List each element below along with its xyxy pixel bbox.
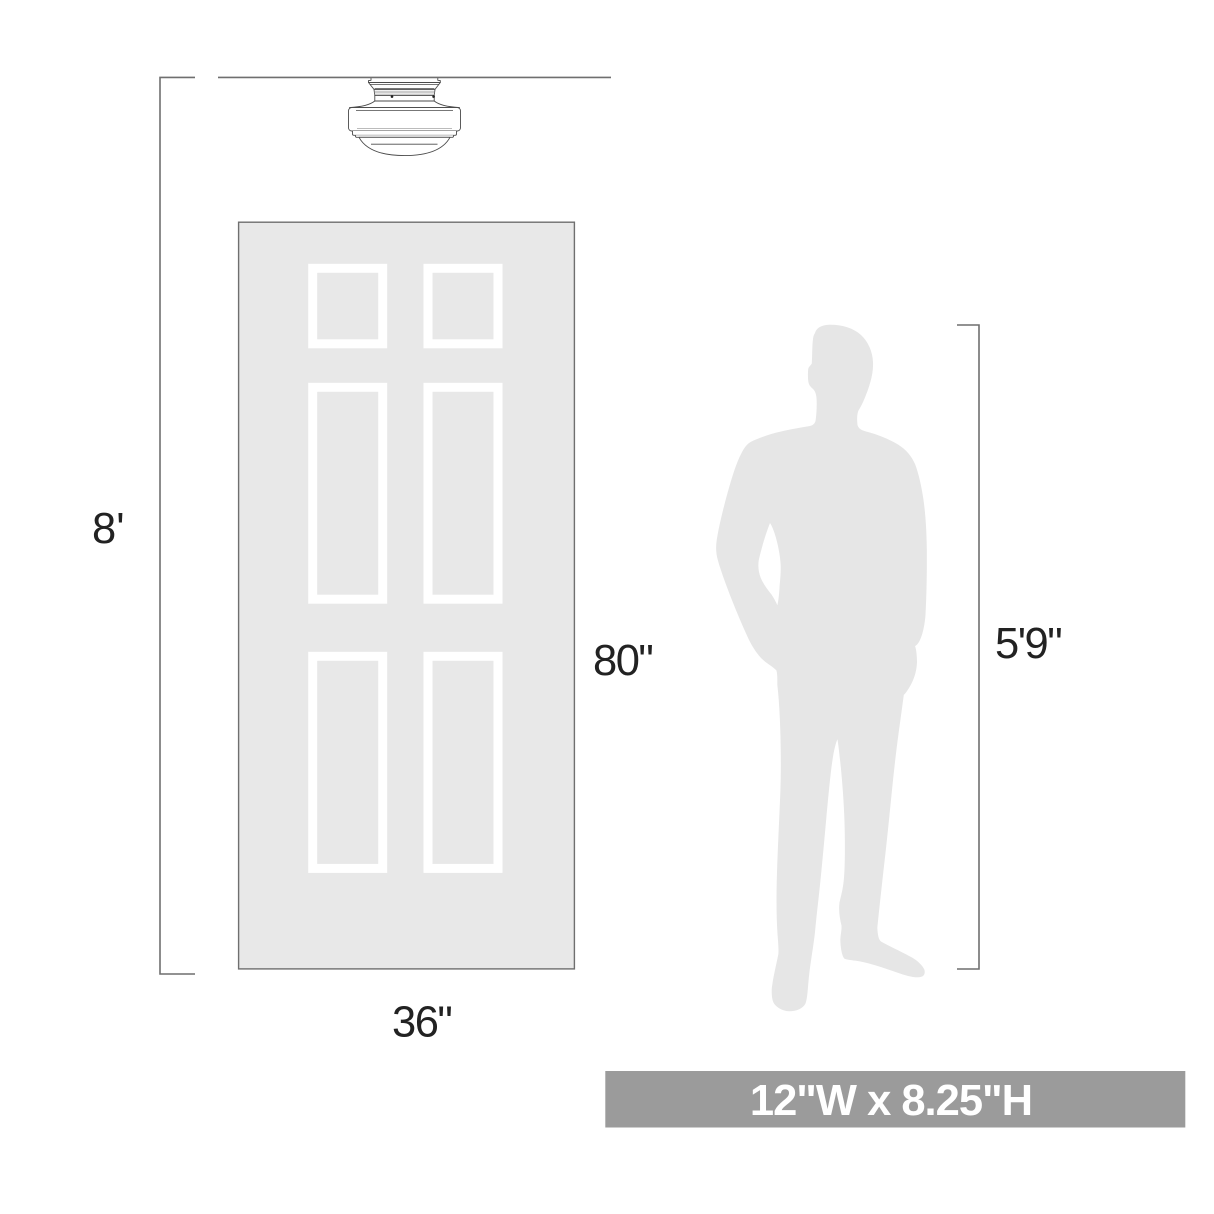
svg-text:5'9": 5'9" — [995, 620, 1061, 668]
svg-text:36": 36" — [392, 999, 451, 1047]
svg-text:8': 8' — [92, 505, 125, 553]
svg-text:80": 80" — [593, 637, 652, 685]
svg-text:12"W x 8.25"H: 12"W x 8.25"H — [750, 1077, 1032, 1125]
